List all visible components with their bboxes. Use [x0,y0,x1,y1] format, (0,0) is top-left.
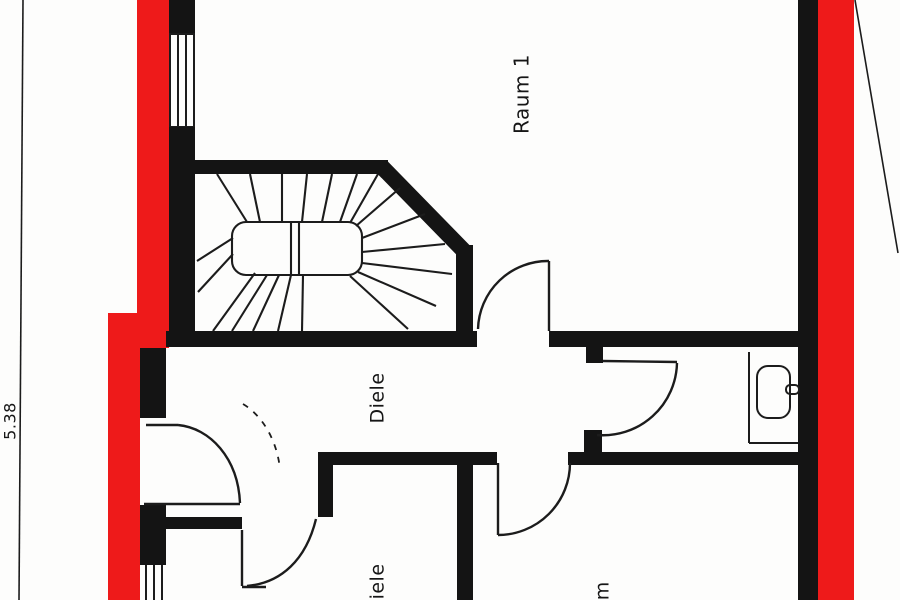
door-swing-dashed [243,404,280,469]
wall-right-exterior [798,0,818,600]
red-wall-right [818,0,854,600]
door-bath [597,361,677,435]
label-diele-bottom: Diele [367,563,389,600]
label-raum-1: Raum 1 [510,54,534,134]
wall-middle-left-section [166,331,477,347]
wall-bottom-left-vertical [318,452,333,517]
red-wall-left-lower [108,313,140,600]
floor-plan-page: Raum 1DieleDieleum5.38 [0,0,900,600]
wall-stub-upper [586,347,603,363]
wall-left-door-jamb-upper [140,348,166,418]
sink-icon [757,366,799,418]
label-raum-partial: um [592,581,614,600]
window-left-top [170,34,194,127]
door-bottom-left [242,519,316,587]
door-raum1 [478,261,549,331]
window-left-bottom [146,565,162,600]
wall-bottom-center-vertical [457,463,473,600]
wall-left-door-jamb-lower [140,505,166,565]
wall-stub-lower [584,430,602,453]
wall-middle-right-section [549,331,818,347]
dimension-line-left [19,0,23,600]
red-wall-left-upper [137,0,169,348]
label-diele-center: Diele [367,372,389,423]
boundary-diagonal-line [855,0,898,253]
wall-stair-diagonal [382,167,466,253]
wall-lower-right [568,452,818,465]
label-dimension-5-38: 5.38 [1,402,20,440]
wall-left-middle [169,127,195,347]
door-left-exterior [144,425,240,504]
wall-stair-top [195,160,388,174]
door-bottom-right-room [498,463,570,535]
wall-bottom-left-horizontal [160,517,242,529]
wall-left-top-cap [169,0,195,33]
floor-plan-drawing: Raum 1DieleDieleum5.38 [0,0,900,600]
room-labels: Raum 1DieleDieleum5.38 [1,54,614,600]
